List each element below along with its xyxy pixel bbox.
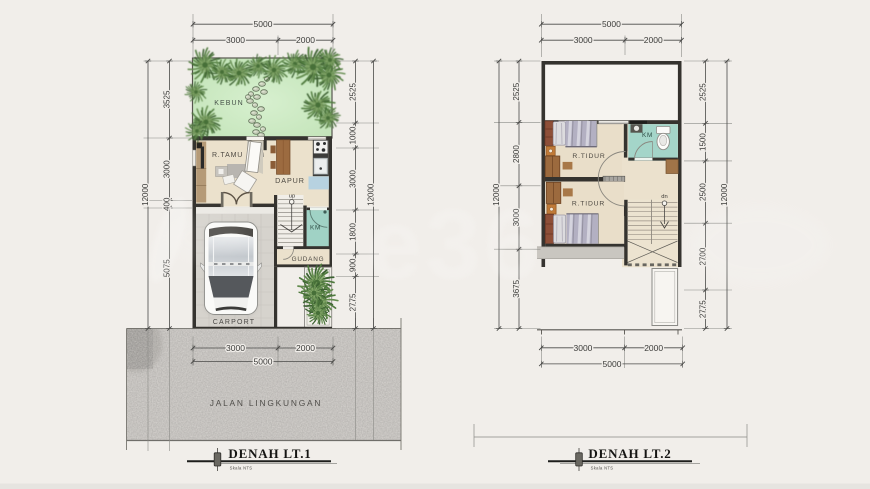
svg-text:5000: 5000 <box>603 359 622 369</box>
svg-text:R.TAMU: R.TAMU <box>212 152 243 159</box>
svg-text:up: up <box>289 194 295 200</box>
svg-text:12000: 12000 <box>720 183 729 206</box>
svg-text:1000: 1000 <box>349 126 358 144</box>
svg-text:12000: 12000 <box>141 183 150 206</box>
svg-text:DAPUR: DAPUR <box>275 176 305 185</box>
svg-text:Skala NTS: Skala NTS <box>591 465 614 470</box>
svg-text:R.TIDUR: R.TIDUR <box>572 153 605 160</box>
svg-text:2525: 2525 <box>349 83 358 101</box>
svg-text:2800: 2800 <box>512 145 521 163</box>
svg-text:JALAN LINGKUNGAN: JALAN LINGKUNGAN <box>210 398 323 408</box>
svg-text:1500: 1500 <box>699 133 708 151</box>
svg-text:3000: 3000 <box>226 35 245 45</box>
svg-text:2525: 2525 <box>512 82 521 100</box>
svg-text:2000: 2000 <box>644 343 663 353</box>
svg-text:2775: 2775 <box>699 300 708 318</box>
svg-text:KM: KM <box>642 132 653 139</box>
svg-text:Skala NTS: Skala NTS <box>230 465 253 470</box>
svg-text:e36: e36 <box>367 189 543 299</box>
svg-text:KM: KM <box>310 225 321 232</box>
svg-text:2775: 2775 <box>349 293 358 311</box>
svg-text:dn: dn <box>661 194 667 200</box>
svg-text:3000: 3000 <box>226 343 245 353</box>
svg-text:1800: 1800 <box>349 223 358 241</box>
svg-text:3525: 3525 <box>163 90 172 108</box>
svg-text:2000: 2000 <box>644 35 663 45</box>
svg-text:5000: 5000 <box>602 19 621 29</box>
svg-text:2000: 2000 <box>296 343 315 353</box>
svg-text:3000: 3000 <box>573 343 592 353</box>
svg-text:900: 900 <box>349 258 358 272</box>
svg-text:5000: 5000 <box>254 19 273 29</box>
svg-text:DENAH LT.2: DENAH LT.2 <box>588 446 671 461</box>
svg-text:3000: 3000 <box>349 170 358 188</box>
svg-text:DENAH LT.1: DENAH LT.1 <box>228 446 311 461</box>
svg-text:R.TIDUR: R.TIDUR <box>572 201 605 208</box>
svg-text:GUDANG: GUDANG <box>292 256 325 263</box>
svg-text:KEBUN: KEBUN <box>214 100 244 107</box>
svg-text:2000: 2000 <box>296 35 315 45</box>
svg-text:2525: 2525 <box>699 83 708 101</box>
svg-text:CARPORT: CARPORT <box>213 319 256 326</box>
svg-text:3000: 3000 <box>574 35 593 45</box>
svg-text:3000: 3000 <box>163 160 172 178</box>
svg-text:2500: 2500 <box>699 183 708 201</box>
svg-text:5000: 5000 <box>254 356 273 366</box>
